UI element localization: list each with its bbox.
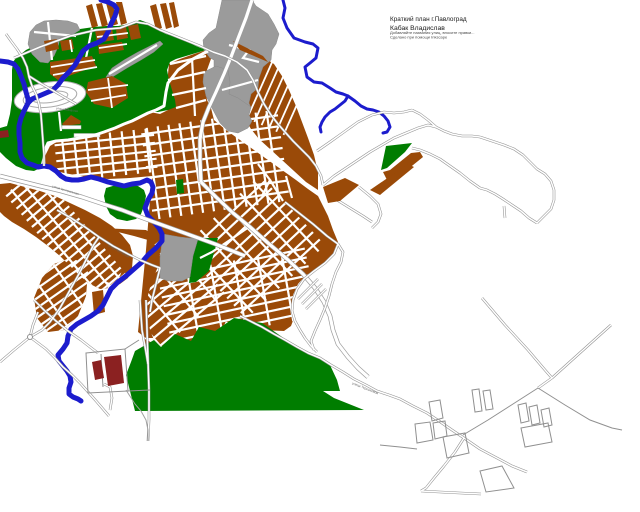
svg-text:Сделано при помощи Inkscape: Сделано при помощи Inkscape <box>390 35 448 40</box>
svg-text:Краткий план г.Павлоград: Краткий план г.Павлоград <box>390 15 467 23</box>
